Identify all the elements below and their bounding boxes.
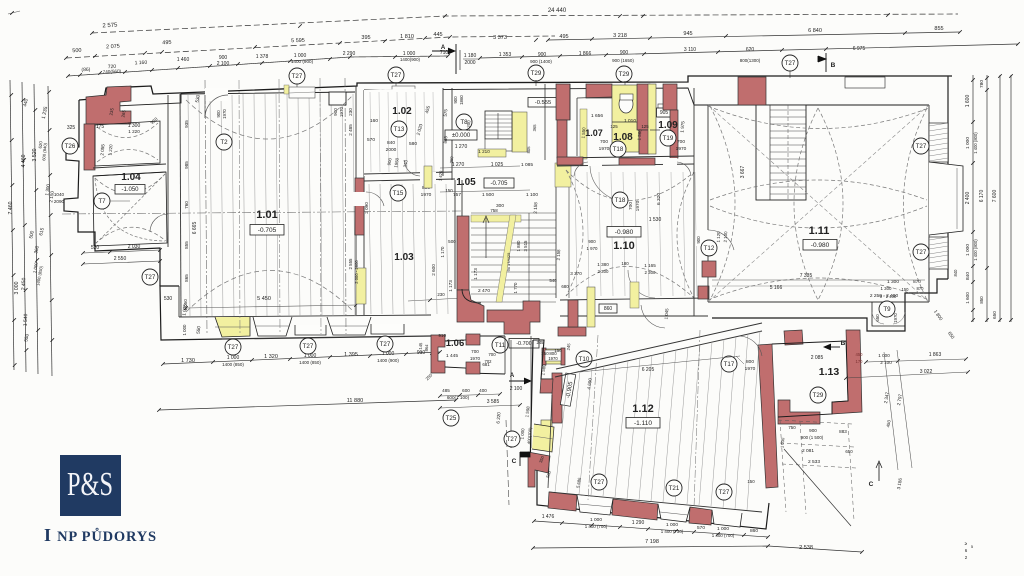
svg-text:1 880: 1 880 [516, 240, 521, 252]
svg-text:1 000: 1 000 [520, 428, 526, 440]
svg-text:1 866: 1 866 [579, 51, 592, 57]
svg-text:1 025: 1 025 [491, 162, 504, 168]
svg-text:750: 750 [788, 425, 796, 430]
svg-text:6 205: 6 205 [642, 367, 655, 373]
svg-text:855: 855 [934, 26, 943, 32]
svg-text:445: 445 [433, 32, 442, 38]
svg-text:1 030: 1 030 [780, 437, 786, 449]
svg-text:2 300: 2 300 [645, 270, 657, 275]
svg-text:520: 520 [91, 245, 100, 251]
svg-text:C: C [512, 458, 517, 465]
svg-text:6 170: 6 170 [979, 190, 985, 203]
svg-text:230: 230 [437, 292, 445, 297]
svg-text:2 450: 2 450 [21, 277, 28, 290]
svg-text:T13: T13 [394, 126, 405, 133]
svg-text:864: 864 [424, 344, 429, 352]
svg-text:1 000: 1 000 [717, 526, 729, 532]
svg-text:T27: T27 [719, 489, 730, 496]
svg-text:3 218: 3 218 [613, 33, 627, 39]
svg-text:580: 580 [409, 141, 417, 147]
svg-text:1970: 1970 [676, 146, 687, 152]
svg-text:700: 700 [600, 139, 608, 145]
svg-text:175: 175 [96, 124, 105, 130]
svg-text:900: 900 [809, 428, 817, 433]
svg-text:1860: 1860 [459, 95, 464, 105]
svg-text:1 400 (730): 1 400 (730) [661, 529, 684, 534]
svg-text:3 373: 3 373 [493, 35, 507, 41]
svg-text:2 300: 2 300 [598, 269, 610, 274]
svg-text:T25: T25 [446, 415, 457, 422]
svg-text:910: 910 [438, 333, 446, 338]
svg-text:1 530: 1 530 [649, 217, 662, 223]
svg-text:700: 700 [628, 202, 634, 210]
svg-text:1.10: 1.10 [613, 240, 634, 252]
svg-text:855: 855 [184, 241, 189, 249]
svg-text:1970: 1970 [635, 200, 641, 211]
svg-text:570: 570 [697, 525, 705, 531]
svg-text:485: 485 [442, 388, 450, 393]
svg-text:1 810: 1 810 [400, 34, 414, 40]
svg-text:3 520: 3 520 [32, 148, 38, 161]
svg-text:3 000: 3 000 [14, 281, 20, 294]
svg-text:2 533: 2 533 [808, 459, 820, 465]
svg-text:2 100: 2 100 [510, 386, 523, 392]
svg-text:B: B [831, 62, 836, 69]
svg-text:1970: 1970 [893, 313, 898, 323]
svg-text:180: 180 [621, 261, 629, 266]
svg-text:681: 681 [482, 362, 490, 367]
svg-text:870: 870 [917, 286, 925, 291]
svg-text:1 656: 1 656 [591, 113, 603, 119]
svg-text:900: 900 [216, 110, 221, 118]
svg-text:7 600: 7 600 [992, 190, 998, 203]
svg-text:1 220: 1 220 [108, 144, 114, 156]
svg-text:1 460: 1 460 [177, 57, 190, 63]
svg-text:2 538: 2 538 [799, 545, 813, 551]
svg-text:1 160: 1 160 [135, 60, 148, 67]
svg-text:1970: 1970 [745, 366, 756, 372]
svg-text:1400 (900): 1400 (900) [291, 59, 314, 64]
svg-text:5 595: 5 595 [291, 38, 305, 44]
svg-text:1 290: 1 290 [632, 520, 645, 526]
svg-text:T7: T7 [98, 198, 106, 205]
svg-text:900: 900 [333, 108, 338, 116]
svg-text:5 450: 5 450 [257, 296, 271, 302]
svg-text:2 100: 2 100 [217, 61, 230, 67]
svg-text:T27: T27 [380, 341, 391, 348]
svg-text:1 000: 1 000 [965, 244, 971, 256]
svg-text:1 045: 1 045 [664, 308, 670, 320]
svg-text:1970: 1970 [599, 146, 610, 152]
svg-text:905: 905 [660, 110, 669, 116]
svg-text:T27: T27 [916, 249, 927, 256]
svg-text:T29: T29 [619, 71, 630, 78]
svg-text:850: 850 [979, 296, 984, 304]
svg-text:450: 450 [856, 352, 864, 357]
svg-text:1970: 1970 [548, 356, 558, 361]
svg-text:1 165: 1 165 [644, 263, 656, 268]
svg-text:-0.555: -0.555 [535, 100, 551, 106]
svg-text:3 515: 3 515 [523, 240, 528, 252]
svg-text:840: 840 [953, 269, 958, 277]
svg-text:1 000: 1 000 [182, 324, 187, 336]
svg-text:1 170: 1 170 [440, 246, 445, 258]
svg-text:900 (1 500): 900 (1 500) [801, 435, 824, 440]
svg-text:T2: T2 [220, 139, 228, 146]
svg-text:1.13: 1.13 [819, 366, 840, 378]
svg-text:-0.705: -0.705 [490, 181, 508, 187]
svg-text:24 440: 24 440 [548, 8, 567, 14]
svg-text:1.01: 1.01 [256, 209, 277, 221]
svg-text:1 445: 1 445 [446, 353, 458, 359]
svg-text:T18: T18 [615, 197, 626, 204]
svg-text:230: 230 [348, 108, 353, 116]
svg-text:250: 250 [449, 156, 455, 164]
svg-text:2090: 2090 [54, 199, 65, 204]
svg-text:T27: T27 [594, 479, 605, 486]
svg-text:1 210: 1 210 [478, 149, 490, 154]
svg-text:1 600: 1 600 [965, 292, 970, 304]
svg-text:530: 530 [164, 296, 173, 302]
svg-text:1 395: 1 395 [344, 352, 358, 358]
svg-text:2 485: 2 485 [348, 124, 353, 136]
svg-text:780: 780 [979, 80, 985, 88]
svg-text:1400(900): 1400(900) [400, 57, 421, 62]
svg-text:T19: T19 [663, 135, 674, 142]
svg-text:1 145: 1 145 [418, 342, 424, 353]
svg-text:1 300: 1 300 [881, 286, 893, 291]
svg-text:1 560: 1 560 [637, 129, 643, 141]
svg-text:760: 760 [184, 201, 189, 209]
svg-text:1 975: 1 975 [680, 120, 686, 132]
svg-text:1 600: 1 600 [965, 95, 971, 108]
svg-text:9x 17/4/29: 9x 17/4/29 [506, 252, 511, 271]
svg-text:4 460: 4 460 [21, 154, 27, 167]
svg-text:900 (1400): 900 (1400) [530, 59, 552, 64]
svg-text:900: 900 [453, 96, 458, 104]
svg-text:T29: T29 [813, 392, 824, 399]
svg-text:2 090: 2 090 [364, 202, 369, 214]
svg-text:2 555: 2 555 [348, 258, 353, 270]
svg-text:1040: 1040 [54, 192, 65, 197]
svg-text:245: 245 [566, 343, 572, 351]
svg-text:7 460: 7 460 [8, 201, 14, 214]
svg-text:-0.980: -0.980 [811, 242, 830, 249]
svg-text:400: 400 [479, 388, 487, 393]
svg-text:P&S: P&S [67, 466, 113, 503]
svg-text:840: 840 [387, 140, 395, 146]
svg-text:805: 805 [526, 146, 531, 154]
svg-text:1.04: 1.04 [121, 172, 141, 183]
svg-text:865: 865 [443, 135, 449, 143]
svg-text:T26: T26 [65, 143, 76, 150]
svg-text:170: 170 [856, 359, 864, 364]
svg-text:1 085: 1 085 [521, 162, 533, 168]
svg-text:900: 900 [538, 52, 547, 58]
svg-text:1 476: 1 476 [542, 514, 555, 520]
svg-text:6 975: 6 975 [853, 46, 866, 52]
svg-text:680: 680 [561, 284, 569, 289]
svg-text:A: A [441, 45, 446, 51]
svg-text:300: 300 [496, 203, 504, 209]
svg-text:1 200: 1 200 [466, 120, 472, 132]
svg-text:A: A [510, 373, 515, 379]
svg-text:T27: T27 [916, 143, 927, 150]
svg-text:985: 985 [184, 161, 189, 169]
svg-text:T27: T27 [785, 60, 796, 67]
svg-text:1 400 (800): 1 400 (800) [973, 239, 978, 261]
svg-text:-1.050: -1.050 [121, 187, 139, 193]
svg-text:1.11: 1.11 [809, 225, 830, 237]
svg-text:2 100: 2 100 [723, 231, 729, 243]
svg-text:1.12: 1.12 [632, 403, 653, 415]
svg-text:650: 650 [992, 311, 997, 319]
svg-text:500: 500 [72, 48, 81, 54]
svg-text:1 173: 1 173 [448, 280, 453, 292]
svg-text:2 290: 2 290 [343, 51, 356, 57]
svg-text:1 420: 1 420 [438, 170, 444, 182]
svg-text:2 575: 2 575 [102, 23, 118, 30]
svg-text:T11: T11 [495, 342, 506, 349]
svg-text:1 353: 1 353 [499, 52, 512, 58]
svg-text:1 100: 1 100 [526, 192, 538, 198]
svg-text:620: 620 [746, 47, 755, 53]
svg-text:900: 900 [696, 236, 701, 244]
svg-text:1 000: 1 000 [227, 355, 240, 361]
svg-text:1 500: 1 500 [482, 192, 494, 198]
svg-text:125: 125 [610, 124, 618, 129]
svg-text:900: 900 [588, 239, 596, 244]
svg-text:7 198: 7 198 [645, 539, 659, 545]
svg-text:650: 650 [845, 449, 853, 454]
svg-text:600: 600 [462, 388, 470, 393]
svg-text:T27: T27 [145, 274, 156, 281]
svg-text:350: 350 [541, 351, 549, 356]
svg-text:570: 570 [367, 137, 375, 143]
svg-text:1 010: 1 010 [624, 118, 636, 124]
svg-text:1 270: 1 270 [455, 144, 468, 150]
svg-text:700: 700 [488, 352, 496, 357]
svg-text:1970: 1970 [222, 109, 227, 119]
svg-text:2 030: 2 030 [128, 244, 141, 250]
svg-text:T17: T17 [724, 361, 735, 368]
svg-text:700: 700 [471, 349, 479, 354]
svg-text:500: 500 [448, 239, 456, 244]
svg-text:1 863: 1 863 [929, 352, 942, 358]
svg-text:1 035: 1 035 [182, 303, 188, 315]
svg-text:150: 150 [554, 348, 562, 353]
svg-text:245: 245 [537, 340, 545, 345]
svg-text:883: 883 [839, 429, 847, 434]
svg-text:2 000 - 2600: 2 000 - 2600 [354, 260, 359, 284]
svg-text:1400 (900): 1400 (900) [377, 358, 399, 363]
svg-text:1.03: 1.03 [394, 252, 414, 263]
svg-text:740(560): 740(560) [103, 68, 122, 74]
svg-text:T27: T27 [507, 436, 518, 443]
svg-text:-0.700: -0.700 [516, 341, 532, 347]
svg-text:1 380: 1 380 [597, 262, 609, 267]
svg-text:1 000: 1 000 [965, 137, 971, 149]
svg-text:2 075: 2 075 [106, 44, 120, 51]
svg-text:T21: T21 [669, 485, 680, 492]
svg-text:2 400: 2 400 [965, 192, 971, 205]
svg-text:1 173: 1 173 [473, 268, 478, 280]
svg-text:6 840: 6 840 [808, 28, 822, 34]
svg-text:945: 945 [683, 31, 692, 37]
svg-text:1 000: 1 000 [666, 522, 678, 528]
svg-text:1 970: 1 970 [587, 246, 599, 251]
svg-text:1970: 1970 [421, 192, 432, 198]
svg-text:1 400 (700): 1 400 (700) [585, 524, 608, 529]
svg-text:1 120: 1 120 [716, 231, 722, 243]
svg-text:1 400 (800): 1 400 (800) [973, 132, 978, 154]
svg-text:1 000: 1 000 [590, 517, 602, 523]
svg-text:1970: 1970 [470, 356, 481, 361]
svg-text:550: 550 [196, 325, 202, 334]
svg-text:395: 395 [361, 35, 370, 41]
svg-text:T12: T12 [704, 245, 715, 252]
svg-text:1.09: 1.09 [658, 120, 678, 131]
svg-text:1 180: 1 180 [464, 53, 477, 59]
svg-text:1.07: 1.07 [585, 128, 603, 138]
svg-text:2 055: 2 055 [100, 143, 106, 155]
svg-text:1 220: 1 220 [128, 129, 140, 134]
svg-text:T9: T9 [883, 306, 891, 313]
svg-text:6 220: 6 220 [496, 411, 502, 423]
svg-text:800(1300): 800(1300) [740, 58, 761, 63]
svg-text:T27: T27 [292, 73, 303, 80]
svg-text:T15: T15 [393, 190, 404, 197]
svg-text:650: 650 [875, 314, 880, 322]
svg-text:2 550: 2 550 [114, 256, 127, 262]
svg-text:1400 (850): 1400 (850) [222, 362, 244, 367]
svg-text:125: 125 [641, 124, 649, 129]
svg-text:1 378: 1 378 [256, 54, 269, 60]
svg-text:935: 935 [184, 120, 189, 128]
svg-text:860: 860 [750, 528, 758, 534]
svg-text:1.05: 1.05 [456, 177, 476, 188]
svg-text:-1.110: -1.110 [634, 420, 652, 427]
svg-text:1 400 (700): 1 400 (700) [712, 533, 735, 538]
svg-text:757: 757 [453, 192, 461, 198]
svg-text:C: C [869, 481, 874, 488]
svg-text:0 - 2 400: 0 - 2 400 [880, 294, 897, 299]
svg-text:840: 840 [965, 272, 971, 280]
svg-text:325: 325 [67, 125, 76, 131]
svg-text:2000: 2000 [386, 147, 397, 153]
svg-text:T18: T18 [613, 146, 624, 153]
svg-text:1.06: 1.06 [446, 338, 465, 349]
svg-text:2 158: 2 158 [533, 202, 539, 214]
svg-text:150: 150 [902, 287, 910, 292]
svg-text:1400 (850): 1400 (850) [299, 360, 321, 365]
svg-text:160: 160 [370, 118, 378, 124]
svg-text:495: 495 [559, 34, 568, 40]
svg-text:T27: T27 [391, 72, 402, 79]
svg-text:6 320: 6 320 [656, 193, 662, 205]
svg-text:2 085: 2 085 [811, 355, 824, 361]
svg-text:2 100: 2 100 [880, 360, 892, 365]
svg-text:1 550: 1 550 [581, 127, 587, 139]
svg-text:T27: T27 [303, 343, 314, 350]
svg-text:365: 365 [532, 124, 537, 132]
svg-text:7 335: 7 335 [800, 273, 813, 279]
svg-text:900: 900 [620, 50, 629, 56]
svg-text:2 470: 2 470 [478, 288, 490, 294]
svg-text:1.02: 1.02 [392, 106, 412, 117]
svg-text:(86): (86) [81, 67, 91, 73]
svg-text:2 600: 2 600 [431, 264, 436, 276]
svg-text:2 081: 2 081 [802, 448, 814, 454]
svg-text:T29: T29 [531, 70, 542, 77]
svg-text:900 (1650): 900 (1650) [612, 58, 634, 63]
svg-text:575: 575 [443, 108, 449, 116]
svg-text:11 880: 11 880 [347, 398, 363, 404]
svg-text:3 110: 3 110 [684, 47, 696, 53]
svg-text:2 158: 2 158 [556, 249, 562, 261]
svg-text:1 540: 1 540 [23, 313, 30, 326]
svg-text:800: 800 [746, 359, 754, 365]
svg-text:1 770: 1 770 [513, 282, 518, 294]
svg-text:-0.705: -0.705 [258, 227, 277, 234]
svg-text:-0.980: -0.980 [615, 229, 634, 236]
svg-text:2000: 2000 [464, 60, 475, 66]
svg-text:6 665: 6 665 [192, 222, 198, 235]
svg-text:±0.000: ±0.000 [452, 133, 471, 139]
svg-text:3 667: 3 667 [740, 166, 746, 179]
svg-text:700: 700 [677, 139, 685, 145]
svg-text:T27: T27 [228, 344, 239, 351]
svg-text:B: B [841, 340, 846, 347]
svg-text:3 370: 3 370 [570, 271, 582, 276]
svg-text:865: 865 [184, 274, 189, 282]
svg-text:150: 150 [747, 479, 755, 484]
svg-text:3 585: 3 585 [487, 399, 500, 405]
svg-text:495: 495 [162, 40, 171, 46]
svg-text:860: 860 [604, 306, 613, 312]
